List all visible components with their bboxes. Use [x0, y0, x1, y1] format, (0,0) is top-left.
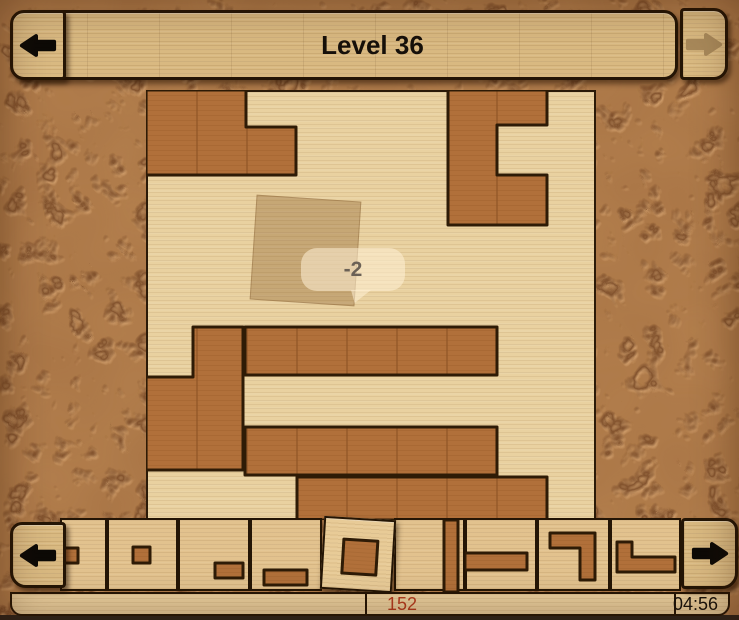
tray-tile[interactable] — [610, 518, 681, 591]
tray-tile[interactable] — [537, 518, 610, 591]
board-block[interactable] — [146, 327, 243, 470]
puzzle-board[interactable]: -2 — [146, 90, 596, 520]
tray-piece[interactable] — [133, 547, 150, 563]
board-block[interactable] — [297, 477, 547, 520]
board-block[interactable] — [245, 427, 497, 475]
left-arrow-icon — [18, 33, 58, 58]
left-arrow-icon — [18, 543, 58, 568]
status-bar: 152 04:56 — [10, 592, 730, 616]
tray-scroll-right-button[interactable] — [681, 518, 738, 589]
tray-piece-layer — [610, 520, 681, 592]
tray-piece-layer — [250, 520, 322, 592]
level-header-panel: Level 36 — [12, 10, 678, 80]
tray-tile[interactable] — [465, 518, 537, 591]
tray-piece-layer — [465, 520, 537, 592]
tray-tile[interactable] — [250, 518, 322, 591]
level-title: Level 36 — [70, 13, 675, 77]
tooltip-value: -2 — [344, 258, 363, 281]
timer: 04:56 — [673, 594, 718, 614]
tray-piece-layer — [320, 518, 396, 594]
tray-tile-selected[interactable] — [320, 516, 396, 593]
tray-piece[interactable] — [215, 563, 243, 578]
right-arrow-disabled-icon — [684, 32, 724, 57]
tray-piece[interactable] — [264, 570, 307, 585]
tray-piece-layer — [178, 520, 250, 592]
next-level-button[interactable] — [680, 8, 728, 80]
game-screen: Level 36 -2 152 04:56 — [0, 0, 739, 620]
board-block[interactable] — [146, 90, 296, 175]
tray-tile[interactable] — [178, 518, 250, 591]
tray-piece[interactable] — [342, 539, 378, 575]
score-tooltip: -2 — [301, 248, 405, 291]
tray-piece[interactable] — [465, 553, 527, 570]
piece-tray — [0, 518, 739, 591]
tray-piece-layer — [60, 520, 107, 592]
tray-piece-layer — [107, 520, 178, 592]
right-arrow-icon — [690, 541, 730, 566]
tray-piece-layer — [394, 520, 465, 592]
status-divider — [365, 594, 367, 614]
tray-tile[interactable] — [394, 518, 465, 591]
tray-tile[interactable] — [60, 518, 107, 591]
tray-tile[interactable] — [107, 518, 178, 591]
tray-piece[interactable] — [444, 520, 458, 592]
tray-piece[interactable] — [550, 533, 595, 580]
board-block[interactable] — [245, 327, 497, 375]
tray-piece-layer — [537, 520, 610, 592]
tray-piece[interactable] — [617, 542, 675, 572]
board-block[interactable] — [448, 90, 547, 225]
moves-counter: 152 — [387, 594, 417, 614]
previous-level-button[interactable] — [10, 10, 66, 80]
tray-scroll-left-button[interactable] — [10, 522, 66, 588]
board-blocks-layer — [146, 90, 596, 520]
